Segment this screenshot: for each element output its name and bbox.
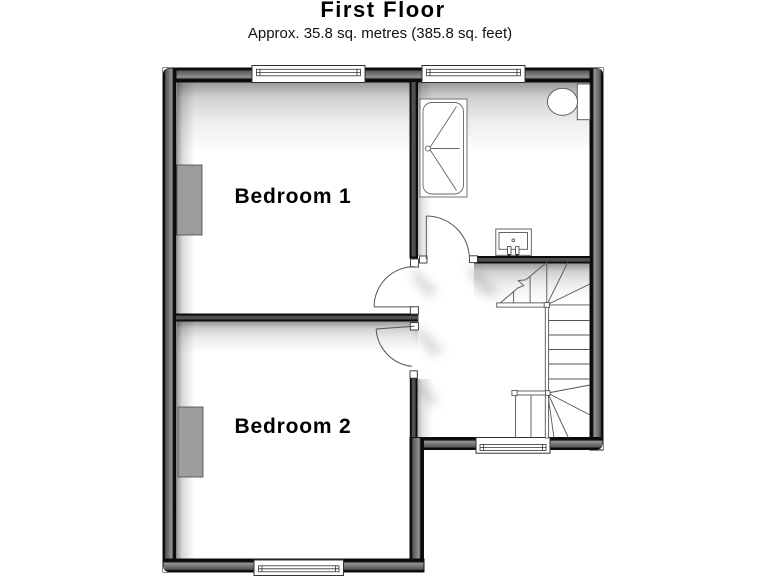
svg-text:Approx. 35.8 sq. metres (385.8: Approx. 35.8 sq. metres (385.8 sq. feet): [248, 25, 512, 42]
svg-text:First Floor: First Floor: [320, 0, 445, 22]
svg-text:Bedroom 2: Bedroom 2: [235, 415, 352, 438]
svg-text:Bedroom 1: Bedroom 1: [235, 185, 352, 208]
